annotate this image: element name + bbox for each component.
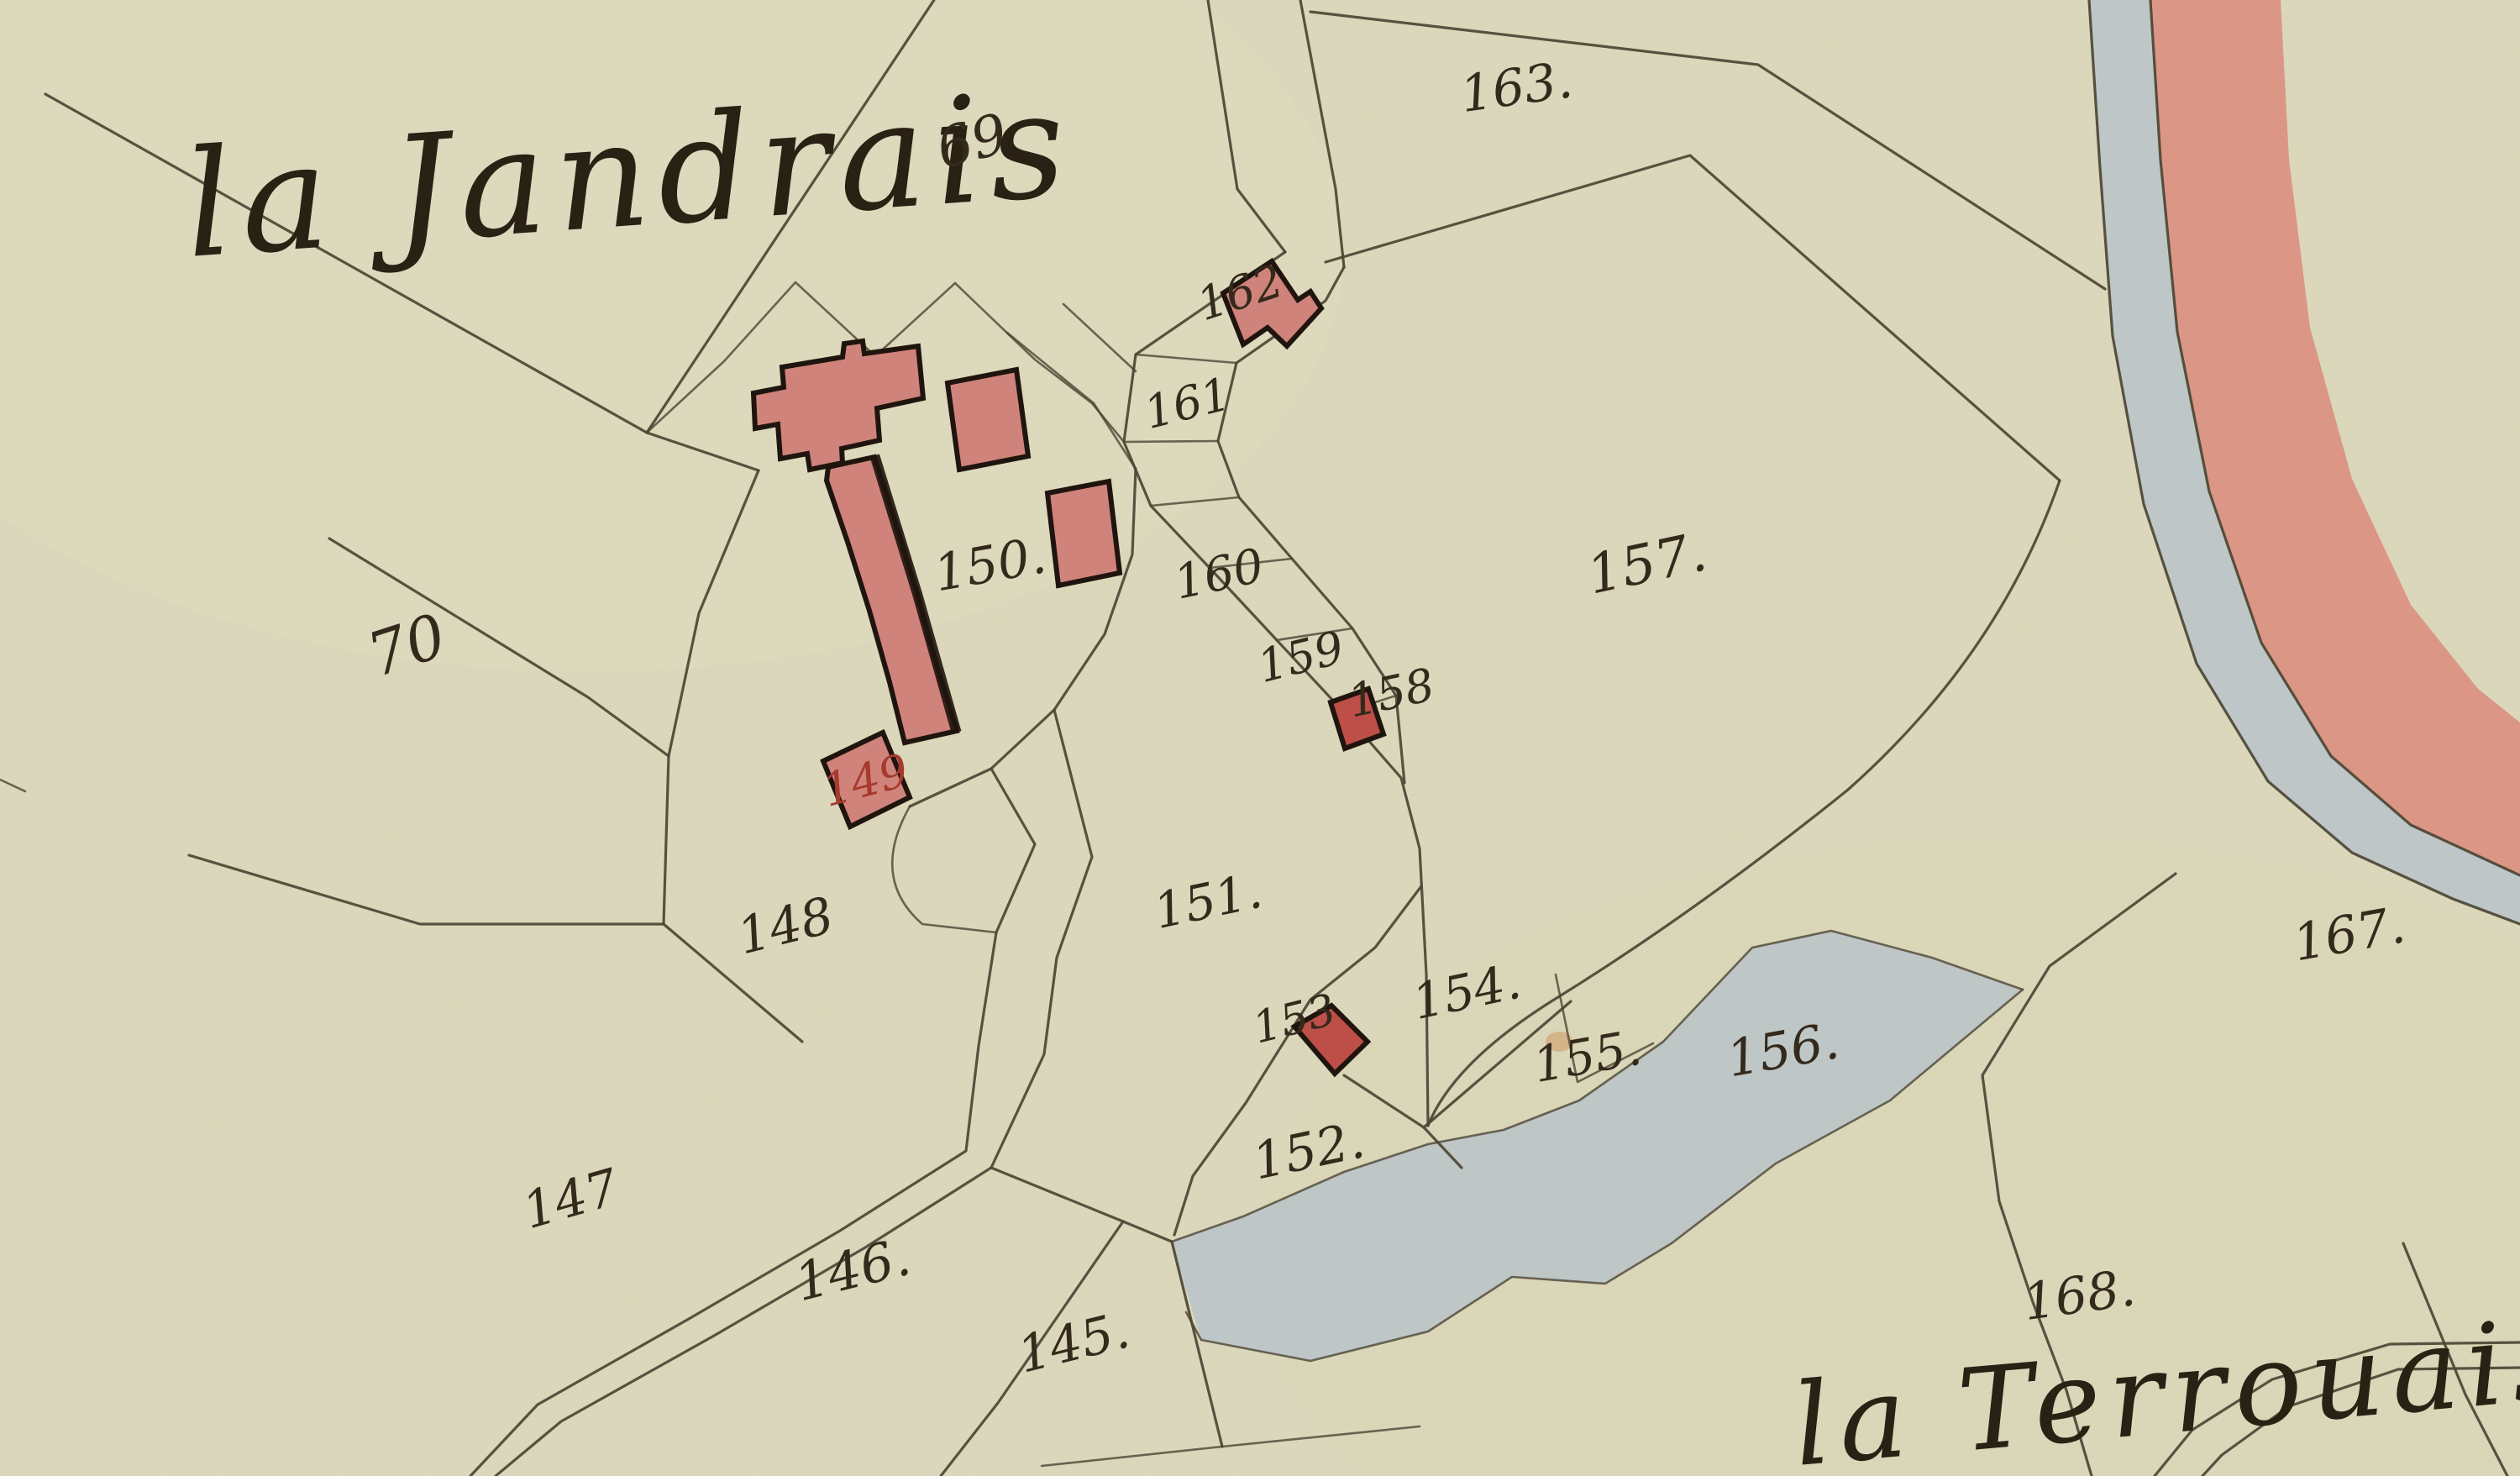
building-150-east-barn — [1047, 481, 1120, 586]
map-canvas: la Jandrais la Terrouais 69 70 145. 146.… — [0, 0, 2520, 1476]
building-150-north-barn — [948, 370, 1028, 470]
cadastral-map: la Jandrais la Terrouais 69 70 145. 146.… — [0, 0, 2520, 1476]
plot-rung — [1124, 441, 1218, 442]
